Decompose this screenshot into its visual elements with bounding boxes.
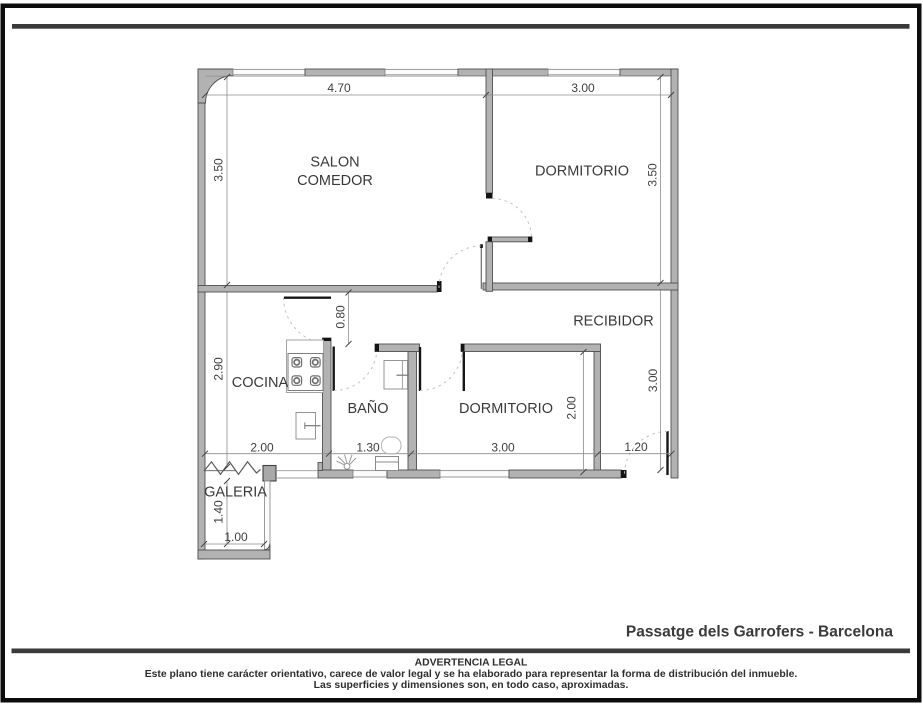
svg-text:2.00: 2.00 bbox=[250, 441, 274, 455]
svg-text:Passatge dels Garrofers - Barc: Passatge dels Garrofers - Barcelona bbox=[626, 624, 893, 641]
svg-text:3.00: 3.00 bbox=[491, 441, 515, 455]
svg-text:Las superficies y dimensiones: Las superficies y dimensiones son, en to… bbox=[314, 680, 629, 691]
svg-text:2.90: 2.90 bbox=[212, 357, 226, 381]
svg-text:4.70: 4.70 bbox=[327, 81, 351, 95]
svg-text:COCINA: COCINA bbox=[232, 375, 289, 391]
svg-text:GALERIA: GALERIA bbox=[204, 485, 267, 501]
svg-text:DORMITORIO: DORMITORIO bbox=[535, 164, 629, 180]
svg-text:1.00: 1.00 bbox=[224, 530, 248, 544]
svg-text:RECIBIDOR: RECIBIDOR bbox=[573, 314, 654, 330]
svg-text:1.20: 1.20 bbox=[624, 440, 648, 454]
svg-text:2.00: 2.00 bbox=[565, 396, 579, 420]
svg-text:0.80: 0.80 bbox=[334, 305, 348, 329]
svg-text:3.00: 3.00 bbox=[646, 368, 660, 392]
svg-text:1.30: 1.30 bbox=[356, 441, 380, 455]
svg-text:3.00: 3.00 bbox=[571, 81, 595, 95]
svg-text:DORMITORIO: DORMITORIO bbox=[459, 401, 553, 417]
svg-text:1.40: 1.40 bbox=[212, 500, 226, 524]
svg-text:3.50: 3.50 bbox=[646, 163, 660, 187]
svg-text:SALON: SALON bbox=[310, 155, 359, 171]
svg-text:3.50: 3.50 bbox=[212, 158, 226, 182]
svg-text:Este plano tiene carácter orie: Este plano tiene carácter orientativo, c… bbox=[145, 669, 798, 680]
svg-text:ADVERTENCIA LEGAL: ADVERTENCIA LEGAL bbox=[415, 658, 528, 669]
svg-text:COMEDOR: COMEDOR bbox=[297, 173, 373, 189]
svg-text:BAÑO: BAÑO bbox=[347, 400, 388, 417]
